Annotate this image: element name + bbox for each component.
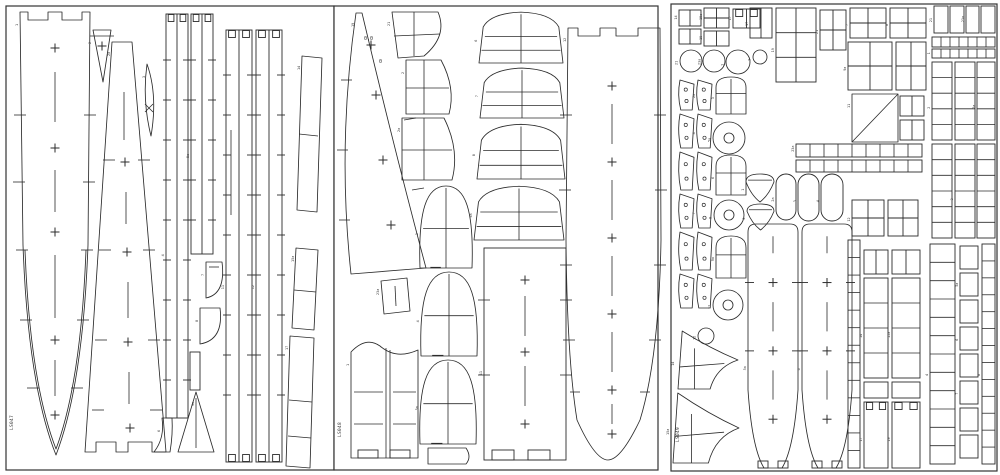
svg-text:9a: 9a: [469, 213, 473, 217]
svg-text:17: 17: [745, 22, 749, 26]
svg-text:9a: 9a: [191, 402, 195, 406]
svg-text:5a: 5a: [955, 283, 959, 287]
svg-text:6: 6: [797, 368, 801, 370]
svg-text:6: 6: [955, 339, 959, 341]
blueprint-canvas: 122a345a6789a11121415a170,00192123a122a3…: [0, 0, 1000, 475]
svg-text:1: 1: [721, 64, 725, 66]
svg-text:2a: 2a: [692, 94, 696, 98]
svg-text:12: 12: [563, 38, 567, 42]
sheet2-code-label: LS048: [337, 422, 343, 437]
svg-text:2a: 2a: [397, 128, 401, 132]
svg-text:4: 4: [416, 320, 420, 322]
svg-text:7: 7: [475, 95, 479, 97]
svg-text:2: 2: [401, 72, 405, 74]
svg-text:23a: 23a: [698, 59, 702, 65]
svg-text:5a: 5a: [186, 154, 190, 158]
svg-text:14: 14: [297, 66, 301, 70]
svg-text:19: 19: [351, 23, 355, 27]
svg-text:11: 11: [708, 305, 712, 309]
parts-sheet-3: 1415a17192123a122a345a6789a11121415a1719…: [666, 4, 997, 471]
svg-text:2: 2: [88, 42, 92, 44]
svg-text:4: 4: [692, 132, 696, 134]
svg-text:21: 21: [815, 30, 819, 34]
parts-sheet-1: 122a345a6789a11121415a17: [6, 6, 334, 470]
svg-text:12: 12: [847, 217, 851, 221]
svg-text:5a: 5a: [708, 138, 712, 142]
svg-text:14: 14: [859, 334, 863, 338]
svg-text:3: 3: [142, 76, 146, 78]
svg-text:0: 0: [379, 59, 382, 65]
svg-text:17: 17: [859, 437, 863, 441]
svg-text:21: 21: [929, 18, 933, 22]
svg-text:2a: 2a: [771, 197, 775, 201]
svg-text:2a: 2a: [107, 52, 111, 56]
parts-layer: 122a345a6789a11121415a170,00192123a122a3…: [6, 4, 997, 471]
svg-text:7: 7: [201, 274, 205, 276]
svg-text:8: 8: [195, 320, 199, 322]
svg-text:2: 2: [742, 217, 746, 219]
svg-text:19: 19: [771, 48, 775, 52]
svg-text:2: 2: [927, 107, 931, 109]
svg-text:12: 12: [251, 285, 255, 289]
sheet1-code-label: LS047: [9, 415, 15, 430]
svg-text:14: 14: [674, 15, 678, 19]
svg-text:23a: 23a: [791, 145, 795, 151]
svg-text:17: 17: [728, 16, 732, 20]
svg-text:9a: 9a: [843, 67, 847, 71]
svg-text:1: 1: [346, 364, 350, 366]
svg-text:7: 7: [692, 212, 696, 214]
svg-text:7: 7: [955, 393, 959, 395]
svg-text:11: 11: [479, 371, 483, 375]
svg-text:15a: 15a: [291, 256, 295, 262]
svg-text:21: 21: [387, 22, 391, 26]
svg-text:15a: 15a: [699, 14, 703, 20]
scanned-template-page: 122a345a6789a11121415a170,00192123a122a3…: [0, 0, 1000, 475]
svg-text:2: 2: [748, 59, 752, 61]
svg-text:4: 4: [161, 254, 165, 256]
svg-text:11: 11: [847, 104, 851, 108]
svg-text:23a: 23a: [376, 289, 380, 295]
svg-text:9a: 9a: [711, 257, 715, 261]
svg-text:19: 19: [887, 437, 891, 441]
svg-text:0,0: 0,0: [364, 36, 373, 42]
svg-text:3: 3: [711, 97, 715, 99]
svg-text:1: 1: [741, 189, 745, 191]
svg-text:5a: 5a: [415, 406, 419, 410]
svg-text:11: 11: [221, 285, 225, 289]
svg-text:8: 8: [472, 154, 476, 156]
svg-text:8: 8: [709, 217, 713, 219]
sheet3-code-label: LS049: [675, 427, 681, 442]
svg-text:6: 6: [711, 177, 715, 179]
svg-text:4: 4: [816, 200, 820, 202]
svg-text:2a: 2a: [972, 105, 976, 109]
svg-text:14: 14: [671, 362, 675, 366]
svg-text:19: 19: [699, 36, 703, 40]
svg-text:7: 7: [845, 24, 849, 26]
svg-text:15a: 15a: [666, 429, 670, 435]
svg-text:1: 1: [927, 52, 931, 54]
svg-text:17: 17: [285, 346, 289, 350]
svg-text:3: 3: [950, 198, 954, 200]
svg-text:6: 6: [474, 40, 478, 42]
svg-text:6: 6: [157, 430, 161, 432]
svg-text:4: 4: [925, 374, 929, 376]
svg-text:8: 8: [977, 374, 981, 376]
svg-text:5a: 5a: [743, 366, 747, 370]
svg-text:3: 3: [415, 233, 419, 235]
svg-text:21: 21: [675, 61, 679, 65]
svg-text:15a: 15a: [887, 332, 891, 338]
svg-text:1: 1: [15, 24, 19, 26]
svg-text:3: 3: [793, 200, 797, 202]
svg-text:8: 8: [885, 24, 889, 26]
parts-sheet-2: 0,00192123a122a345a6789a1112: [334, 6, 667, 470]
svg-text:23a: 23a: [961, 16, 965, 22]
